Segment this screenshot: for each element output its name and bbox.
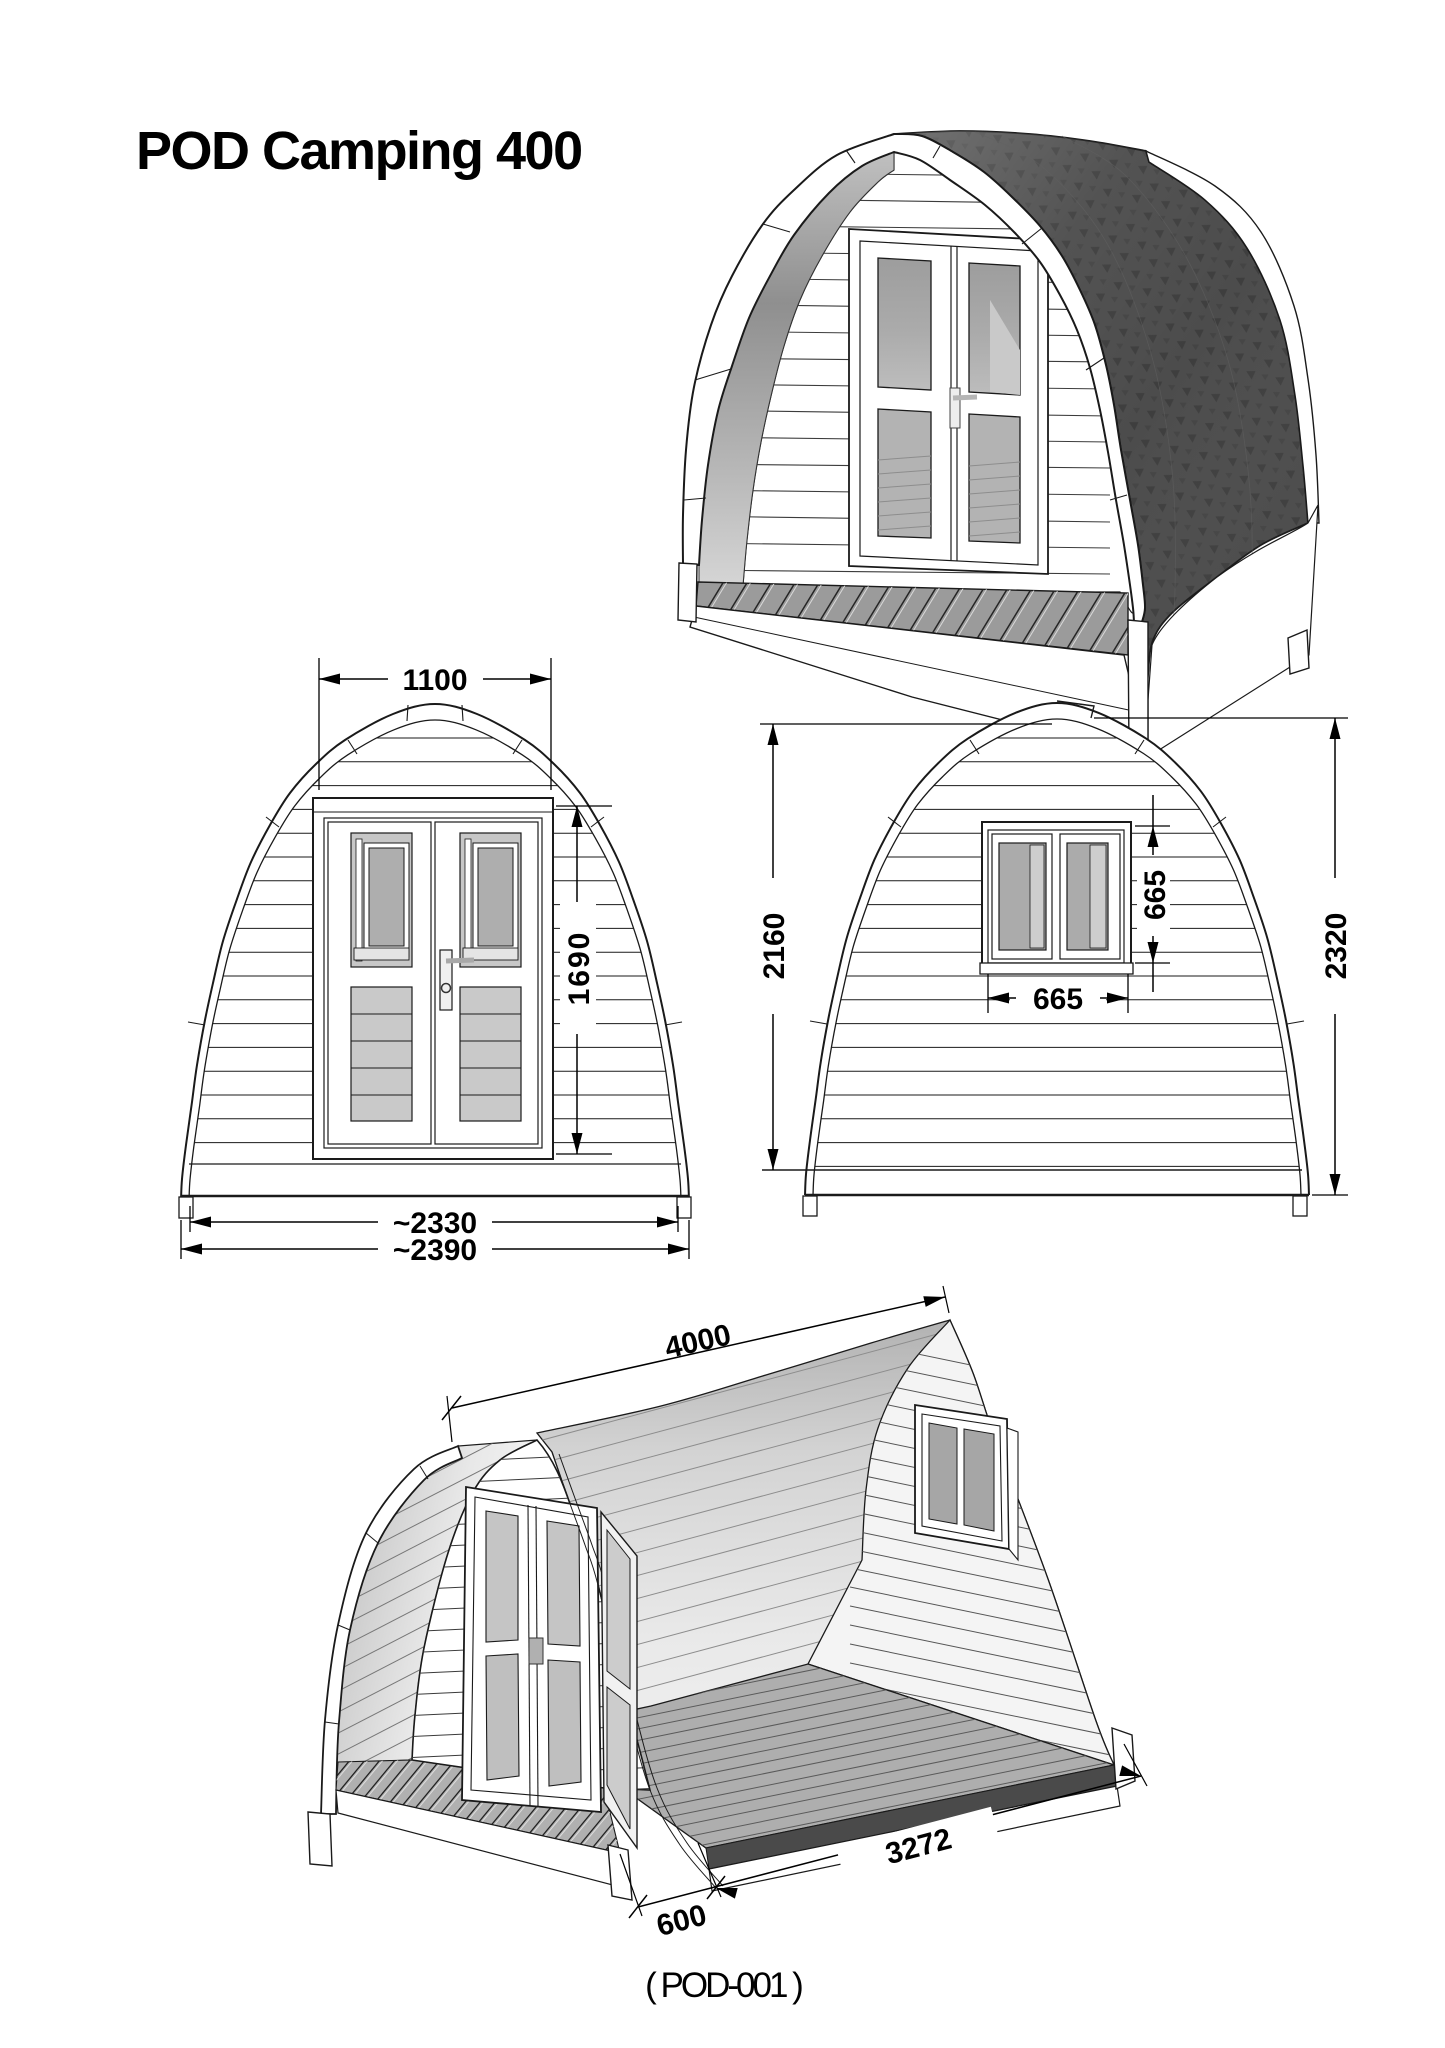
svg-text:1690: 1690: [563, 931, 596, 1006]
svg-text:( POD-001 ): ( POD-001 ): [645, 1966, 802, 2005]
svg-text:665: 665: [1033, 983, 1083, 1016]
svg-text:~2390: ~2390: [393, 1234, 477, 1267]
svg-text:2160: 2160: [758, 913, 791, 980]
svg-text:665: 665: [1139, 870, 1172, 920]
svg-text:4000: 4000: [662, 1318, 734, 1365]
svg-text:POD Camping 400: POD Camping 400: [136, 121, 582, 181]
svg-text:2320: 2320: [1320, 913, 1353, 980]
svg-text:600: 600: [653, 1899, 710, 1944]
svg-text:1100: 1100: [402, 664, 467, 697]
